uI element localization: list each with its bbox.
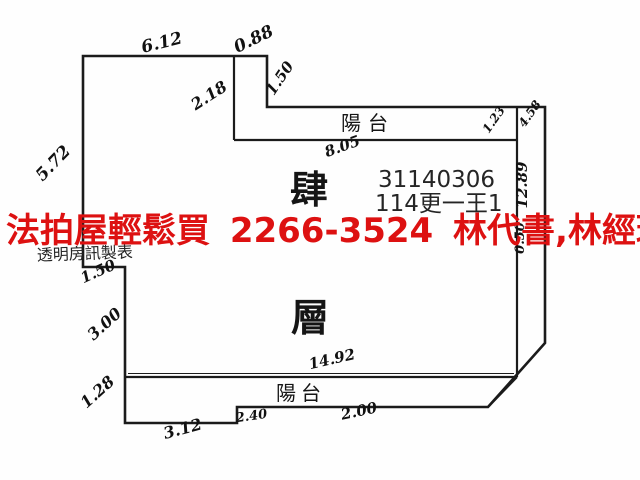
bottom-balcony-label: 陽台	[276, 381, 326, 405]
floor-label-char-2: 層	[291, 295, 329, 340]
dim-right-wall: 12.89	[513, 161, 531, 209]
floor-label-char-1: 肆	[290, 167, 328, 212]
dim-right-strip-top: 4.58	[516, 97, 545, 130]
dim-upper-inset: 2.18	[187, 77, 231, 115]
dim-balcony-right-end: 1.23	[480, 104, 508, 136]
dim-bottom-right: 2.00	[338, 398, 379, 424]
dim-top-width: 6.12	[139, 28, 184, 57]
corner-chamfer-divider	[489, 377, 517, 406]
top-balcony-label: 陽台	[341, 111, 395, 135]
dim-left-mid-wall: 3.00	[83, 304, 125, 344]
dim-top-notch-width: 0.88	[231, 21, 277, 57]
dim-interior-width: 8.05	[322, 132, 362, 161]
dim-interior-bottom-width: 14.92	[307, 345, 357, 373]
case-number: 31140306	[378, 167, 495, 193]
dim-left-upper-wall: 5.72	[32, 142, 75, 186]
dim-bottom-step: 2.40	[234, 407, 268, 426]
ad-overlay-text: 法拍屋輕鬆買 2266-3524 林代書,林經理	[6, 212, 640, 252]
floor-plan-page: 6.12 0.88 1.50 2.18 5.72 8.05 1.23 4.58 …	[0, 0, 640, 480]
dim-left-lower-wall: 1.28	[76, 372, 118, 412]
dim-bottom-left: 3.12	[161, 414, 204, 442]
